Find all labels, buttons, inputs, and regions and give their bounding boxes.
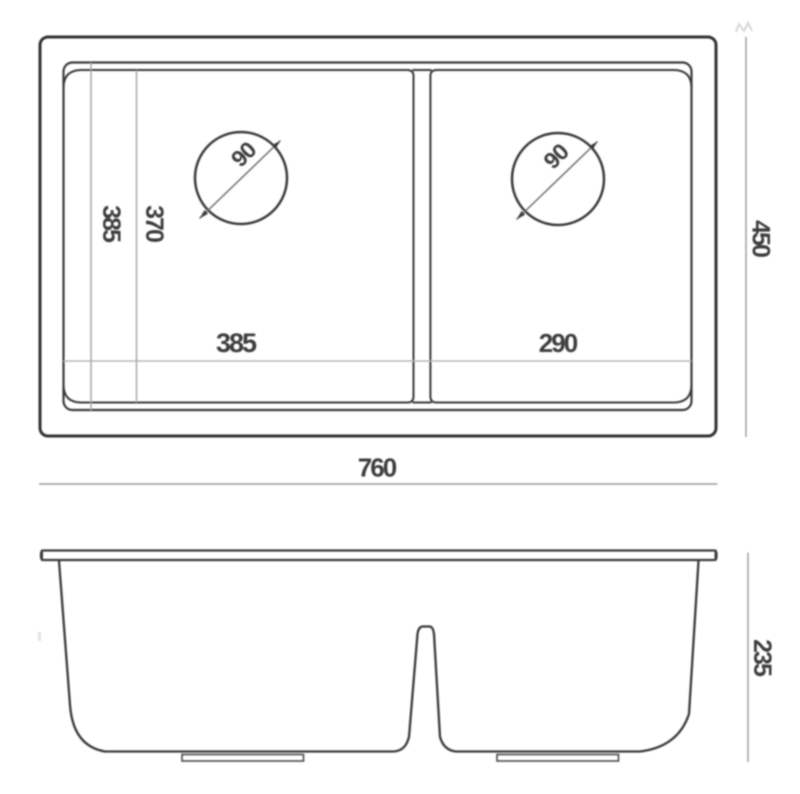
svg-text:760: 760 [358, 453, 397, 483]
svg-text:385: 385 [216, 328, 257, 358]
svg-text:90: 90 [538, 139, 573, 174]
svg-text:235: 235 [748, 639, 776, 677]
svg-text:385: 385 [97, 205, 125, 243]
svg-text:90: 90 [226, 137, 261, 172]
svg-text:450: 450 [747, 220, 775, 257]
svg-text:370: 370 [140, 205, 168, 242]
svg-text:290: 290 [539, 328, 578, 358]
